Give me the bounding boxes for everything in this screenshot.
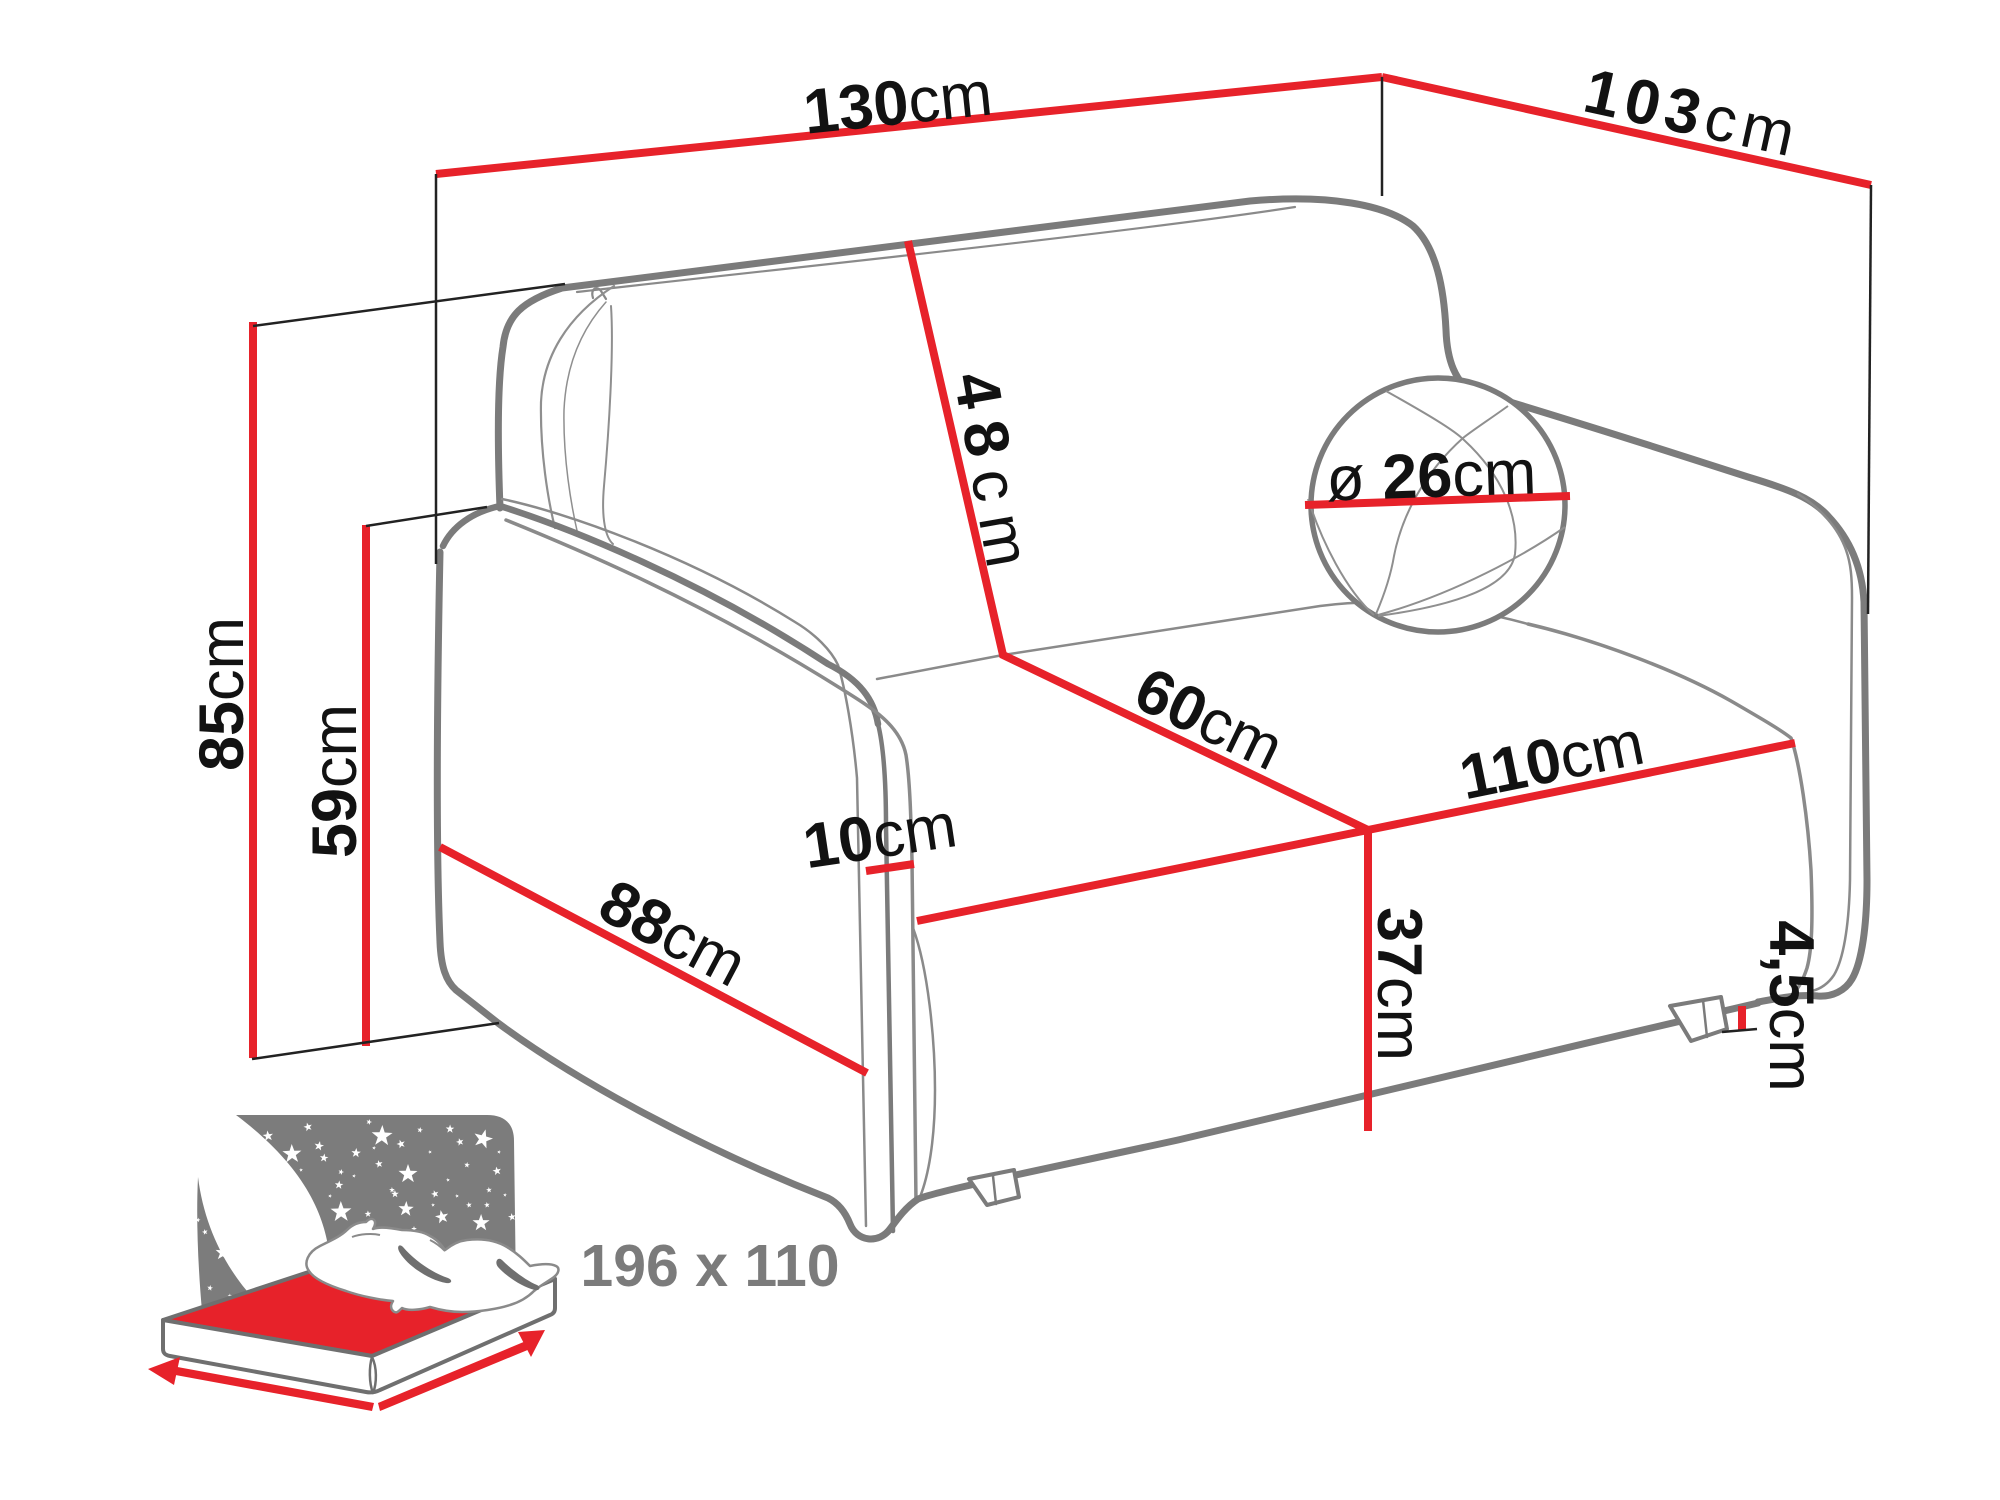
svg-text:59cm: 59cm <box>300 704 370 858</box>
svg-text:85cm: 85cm <box>187 617 257 771</box>
svg-text:ø 26cm: ø 26cm <box>1325 437 1537 514</box>
svg-text:4,5cm: 4,5cm <box>1756 920 1826 1092</box>
svg-text:37cm: 37cm <box>1364 907 1434 1061</box>
svg-text:196 x 110: 196 x 110 <box>580 1233 839 1299</box>
